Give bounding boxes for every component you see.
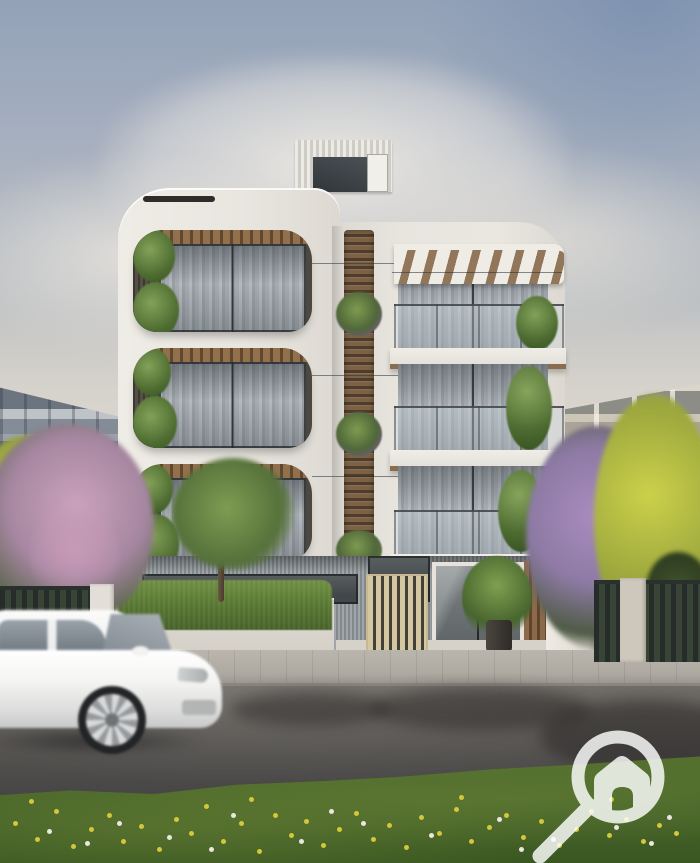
tree-shadow — [230, 692, 390, 726]
car-headlight — [178, 667, 209, 683]
balcony-window — [159, 244, 306, 332]
bulkhead-door — [367, 154, 388, 192]
balcony-opening-floor3 — [133, 230, 312, 332]
car-side-window — [0, 620, 106, 654]
pergola-awning — [394, 244, 564, 284]
cable-line — [312, 375, 400, 376]
magnifier-handle — [540, 806, 590, 856]
balcony-plant — [133, 396, 177, 448]
balcony-plant — [133, 348, 171, 396]
car-bumper-intake — [182, 700, 216, 715]
seed-puff-flowers — [0, 790, 3, 793]
wood-slat-gate — [366, 574, 428, 656]
car-front-wheel — [78, 686, 146, 754]
balcony-plant — [516, 296, 558, 350]
balcony-opening-floor2 — [133, 348, 312, 448]
balcony-plant — [133, 282, 179, 332]
balcony-window — [159, 362, 306, 448]
vent-slot — [143, 196, 215, 202]
balcony-plant — [506, 366, 552, 450]
fence-pillar-right — [620, 578, 646, 662]
bulkhead-window — [313, 157, 367, 192]
magnifier-house-watermark-icon — [532, 710, 700, 863]
cable-line — [312, 263, 400, 264]
facade-seam-shadow — [332, 226, 344, 562]
cable-line — [312, 476, 400, 477]
green-tree — [172, 458, 294, 570]
car-mirror — [132, 646, 149, 656]
louver-planter — [336, 412, 382, 456]
awning-rail — [392, 272, 562, 273]
louver-planter — [336, 292, 382, 336]
balcony-plant — [133, 230, 175, 282]
white-suv — [0, 606, 224, 756]
house-glyph — [594, 756, 650, 810]
wood-louver-screen — [344, 230, 374, 560]
car-wheel-rim — [86, 694, 138, 746]
metal-fence-right — [594, 580, 700, 662]
architectural-render-scene: 146 — [0, 0, 700, 863]
